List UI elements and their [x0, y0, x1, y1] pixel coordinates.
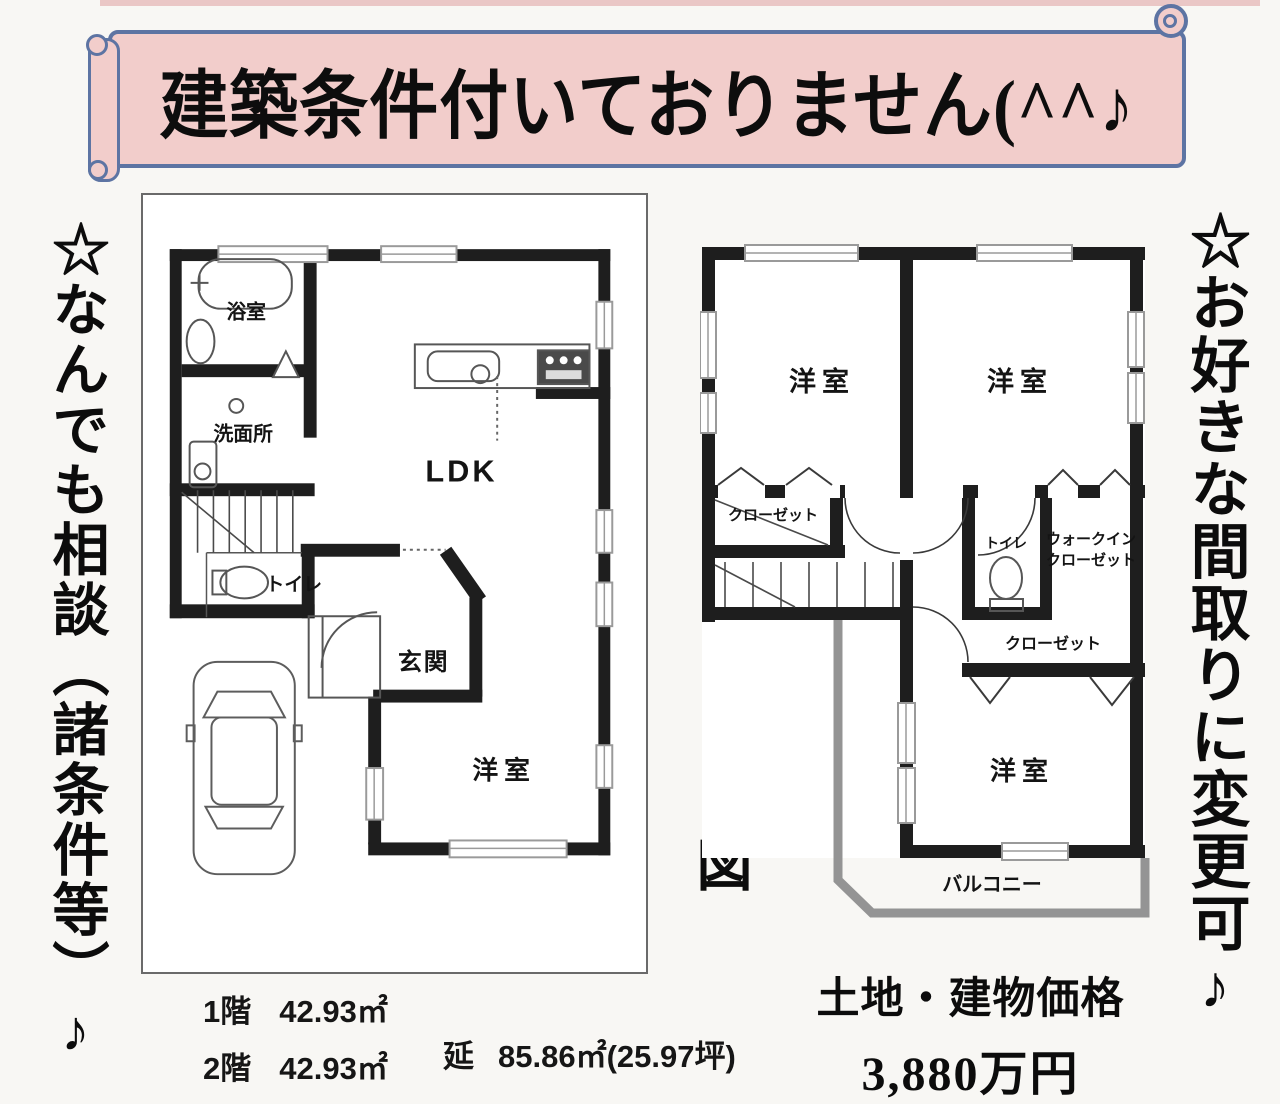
- room-label-closet-bottom: クローゼット: [1005, 634, 1101, 653]
- room-label-balcony: バルコニー: [942, 873, 1042, 896]
- room-label-entrance: 玄関: [398, 648, 450, 676]
- side-note-left: ☆なんでも相談（諸条件等）♪: [34, 220, 116, 1066]
- room-label-bedroom1: 洋室: [789, 366, 855, 397]
- total-area: 延 85.86㎡(25.97坪): [443, 1031, 736, 1076]
- side-note-right: ☆お好きな間取りに変更可♪: [1172, 210, 1259, 1022]
- floor2-area-row: 2階 42.93㎡: [203, 1043, 388, 1088]
- room-label-wic-1: ウォークイン: [1046, 531, 1136, 548]
- floor1-area-row: 1階 42.93㎡: [203, 986, 388, 1031]
- price-block: 土地・建物価格 3,880万円: [808, 964, 1133, 1104]
- headline-text: 建築条件付いておりません(^^♪: [159, 45, 1134, 153]
- room-label-bedroom2: 洋室: [987, 366, 1053, 397]
- scroll-curl-icon: [86, 34, 108, 56]
- room-label-wic-2: クローゼット: [1046, 551, 1136, 569]
- floor2-area-label: 2階: [203, 1043, 251, 1088]
- room-label-closet-left: クローゼット: [728, 506, 818, 524]
- price-label: 土地・建物価格: [808, 964, 1133, 1026]
- scroll-curl-icon: [88, 160, 108, 180]
- room-label-bedroom3: 洋室: [990, 756, 1054, 786]
- room-label-toilet1: トイレ: [266, 573, 323, 594]
- floor1-plan: 浴室 洗面所 LDK トイレ 玄関 洋室: [141, 193, 648, 974]
- floor1-stairs: [182, 490, 293, 553]
- floor2-plan: 洋室 洋室 クローゼット トイレ ウォークイン クローゼット クローゼット 洋室…: [700, 243, 1160, 918]
- floor2-drawing: 洋室 洋室 クローゼット トイレ ウォークイン クローゼット クローゼット 洋室…: [700, 243, 1160, 918]
- flyer-canvas: 建築条件付いておりません(^^♪ ☆なんでも相談（諸条件等）♪ ☆お好きな間取り…: [0, 0, 1280, 1104]
- room-label-toilet2: トイレ: [985, 535, 1027, 551]
- floor2-area-value: 42.93㎡: [279, 1043, 388, 1088]
- scroll-curl-icon: [1163, 14, 1177, 28]
- room-label-ldk: LDK: [425, 453, 497, 488]
- floor1-area-label: 1階: [203, 986, 251, 1031]
- floor1-drawing: 浴室 洗面所 LDK トイレ 玄関 洋室: [143, 195, 646, 972]
- headline-banner: 建築条件付いておりません(^^♪: [108, 30, 1186, 168]
- room-label-bath: 浴室: [226, 301, 266, 324]
- total-area-label: 延: [443, 1031, 474, 1076]
- car-icon: [187, 662, 302, 874]
- floor1-area-value: 42.93㎡: [279, 986, 388, 1031]
- floor1-fixtures: [187, 259, 590, 698]
- floor1-diagonal-wall: [446, 551, 481, 601]
- room-label-bedroom1f: 洋室: [472, 755, 535, 785]
- scroll-paper-top-strip: [100, 0, 1260, 6]
- floor-area-stats: 1階 42.93㎡ 2階 42.93㎡: [203, 986, 388, 1100]
- room-label-washroom: 洗面所: [213, 423, 273, 446]
- total-area-value: 85.86㎡(25.97坪): [498, 1031, 736, 1076]
- price-value: 3,880万円: [808, 1034, 1133, 1104]
